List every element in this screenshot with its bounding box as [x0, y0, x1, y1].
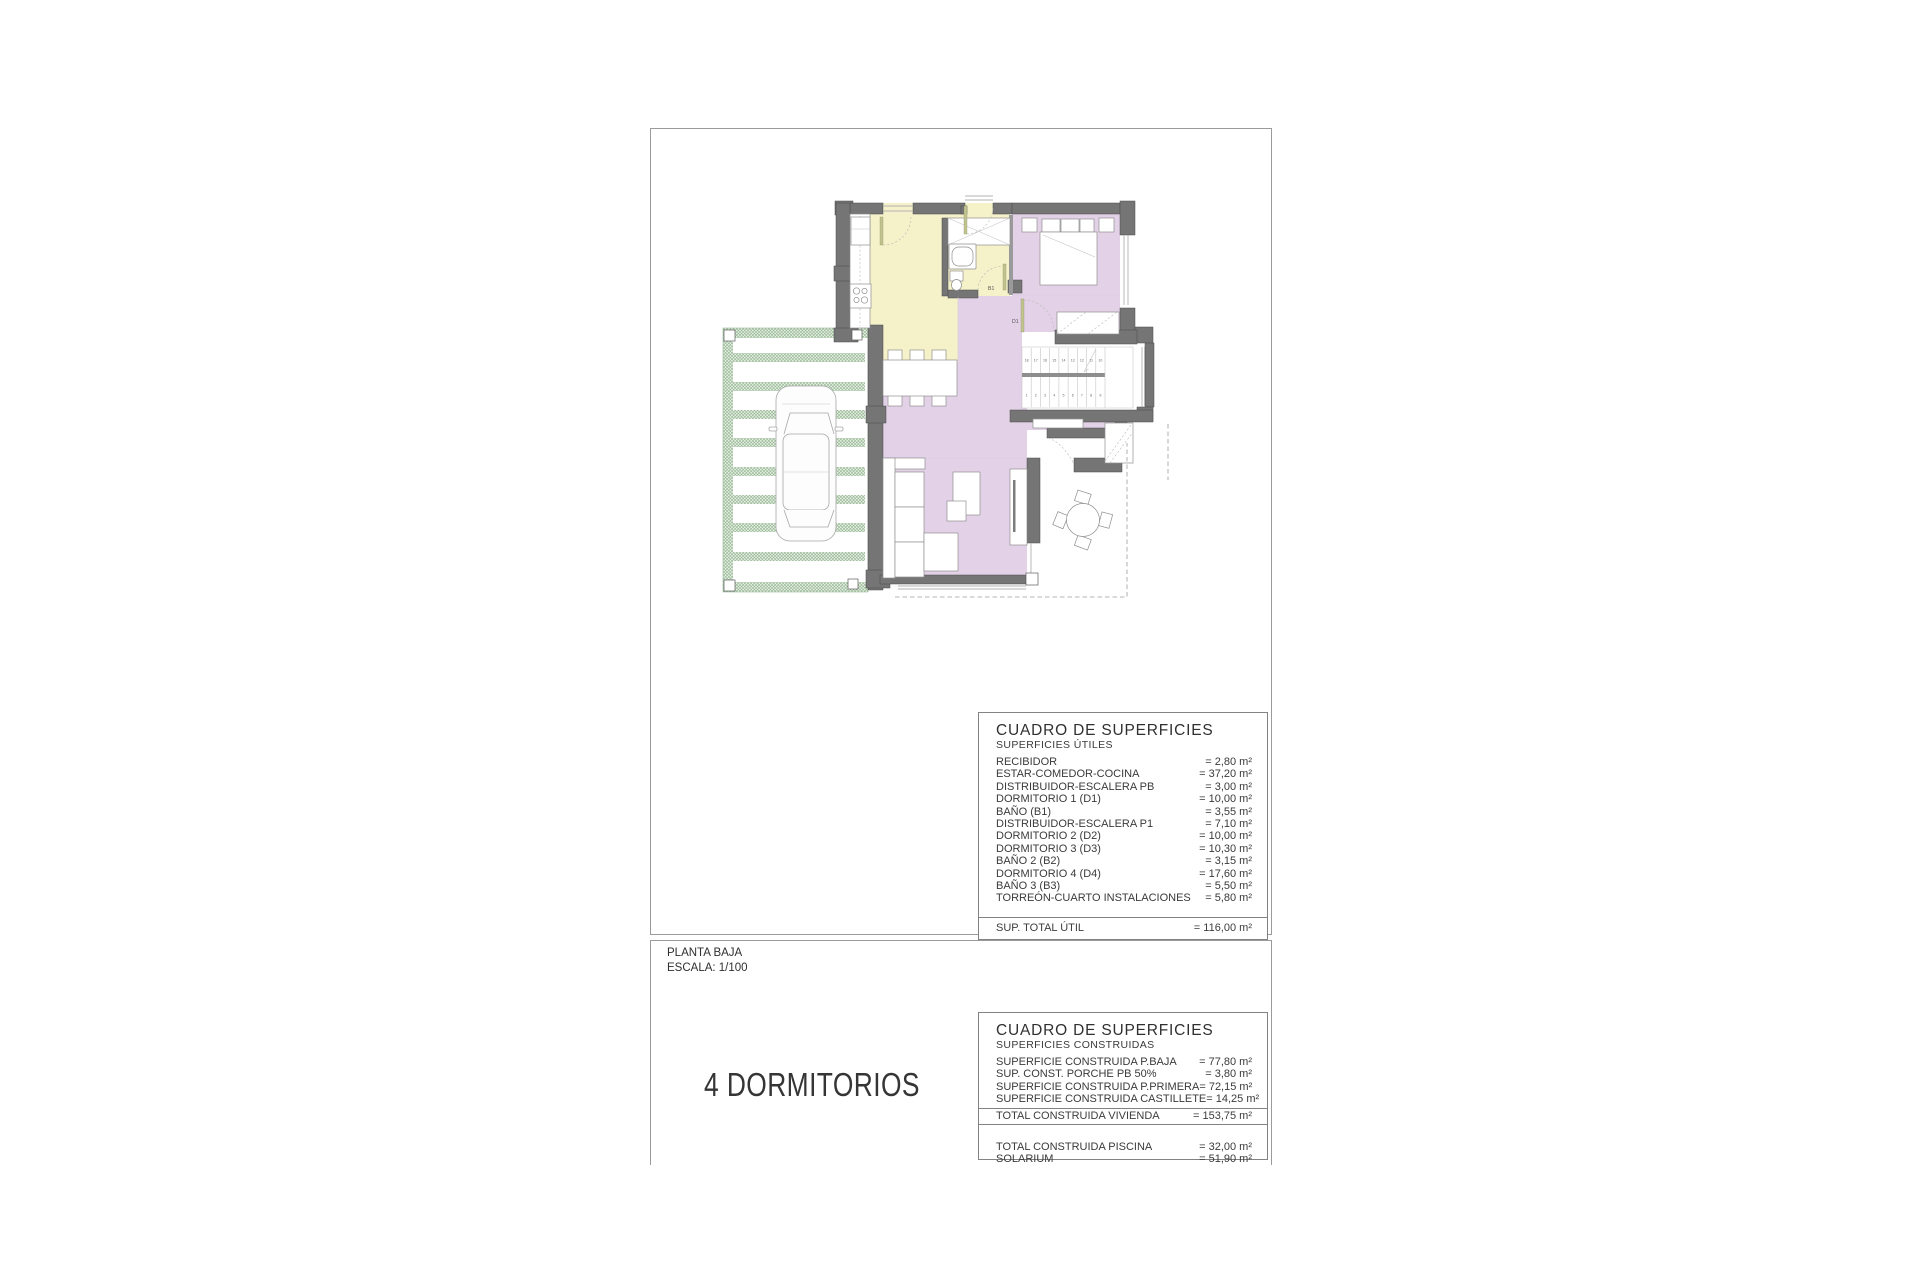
- nightstand: [1099, 218, 1114, 232]
- table-total-row: SUP. TOTAL ÚTIL = 116,00 m²: [979, 917, 1267, 939]
- table-row: RECIBIDOR = 2,80 m²: [996, 756, 1252, 768]
- stair-number: 8: [1090, 394, 1092, 398]
- stair-number: 9: [1099, 394, 1101, 398]
- dining-area: [883, 350, 957, 406]
- stair-number: 15: [1052, 359, 1056, 363]
- fridge: [851, 217, 870, 245]
- stair-number: 12: [1080, 359, 1084, 363]
- stair-number: 4: [1053, 394, 1055, 398]
- terrace-table: [1067, 504, 1100, 537]
- stair-number: 10: [1098, 359, 1102, 363]
- bathroom-label: B1: [988, 286, 994, 292]
- stair-number: 1: [1026, 394, 1028, 398]
- pergola-post: [848, 579, 858, 589]
- plan-name: PLANTA BAJA: [667, 946, 748, 961]
- stair-handrail: [1022, 373, 1105, 377]
- porch-post: [1026, 573, 1038, 585]
- pillow: [1042, 219, 1060, 232]
- table-superficies-utiles: CUADRO DE SUPERFICIES SUPERFICIES ÚTILES…: [978, 712, 1268, 940]
- stair-number: 18: [1025, 359, 1029, 363]
- table-subtitle: SUPERFICIES ÚTILES: [996, 739, 1252, 751]
- nightstand: [1022, 218, 1037, 232]
- stair-number: 6: [1072, 394, 1074, 398]
- terrace-chair: [1074, 490, 1091, 505]
- chair: [910, 350, 924, 361]
- entrance-door-leaf: [964, 206, 967, 234]
- pillow: [1061, 219, 1079, 232]
- stair-number: 17: [1034, 359, 1038, 363]
- wardrobe: [1057, 312, 1119, 334]
- plan-scale: ESCALA: 1/100: [667, 961, 748, 976]
- stair-number: 11: [1089, 359, 1093, 363]
- table-row: SUP. CONST. PORCHE PB 50% = 3,80 m²: [996, 1068, 1252, 1080]
- table-row: SUPERFICIE CONSTRUIDA P.BAJA = 77,80 m²: [996, 1056, 1252, 1068]
- terrace-chair: [1074, 535, 1091, 550]
- sofa-seat: [895, 507, 924, 542]
- table-row: DORMITORIO 3 (D3) = 10,30 m²: [996, 843, 1252, 855]
- terrace-chair: [1053, 512, 1068, 529]
- stair-number: 14: [1062, 359, 1066, 363]
- table-superficies-construidas: CUADRO DE SUPERFICIES SUPERFICIES CONSTR…: [978, 1012, 1268, 1160]
- stair-number: 16: [1043, 359, 1047, 363]
- dormitorios-label: 4 DORMITORIOS: [704, 1066, 920, 1104]
- sofa-chaise: [924, 533, 958, 571]
- staircase: 181716151413121110 123456789: [1022, 347, 1133, 408]
- chair: [932, 395, 946, 406]
- closet: [1105, 423, 1133, 463]
- understair-storage: [1033, 419, 1133, 464]
- side-table: [947, 501, 966, 521]
- chair: [888, 350, 902, 361]
- table-row: TOTAL CONSTRUIDA PISCINA = 32,00 m²: [996, 1141, 1252, 1153]
- table-row: DORMITORIO 2 (D2) = 10,00 m²: [996, 830, 1252, 842]
- shelf: [1033, 419, 1083, 428]
- bedroom-door-leaf: [1021, 299, 1024, 332]
- table-row: TORREÓN-CUARTO INSTALACIONES = 5,80 m²: [996, 892, 1252, 904]
- stair-number: 3: [1044, 394, 1046, 398]
- table-subtitle: SUPERFICIES CONSTRUIDAS: [996, 1039, 1252, 1051]
- stair-number: 5: [1063, 394, 1065, 398]
- sofa-seat: [895, 472, 924, 507]
- pillow: [1080, 219, 1094, 232]
- table-row: BAÑO 3 (B3) = 5,50 m²: [996, 880, 1252, 892]
- sofa-back: [883, 458, 895, 578]
- table-title: CUADRO DE SUPERFICIES: [996, 1023, 1252, 1039]
- sofa-seat: [895, 542, 924, 577]
- bed: [1040, 232, 1097, 285]
- table-row: BAÑO 2 (B2) = 3,15 m²: [996, 855, 1252, 867]
- table-row: DISTRIBUIDOR-ESCALERA P1 = 7,10 m²: [996, 818, 1252, 830]
- table-row: SUPERFICIE CONSTRUIDA P.PRIMERA = 72,15 …: [996, 1081, 1252, 1093]
- floor-plan-svg: 181716151413121110 123456789 B1: [700, 180, 1180, 620]
- table-row: DISTRIBUIDOR-ESCALERA PB = 3,00 m²: [996, 781, 1252, 793]
- stair-numbers-upper: 181716151413121110: [1025, 359, 1103, 363]
- table-rows: SUPERFICIE CONSTRUIDA P.BAJA = 77,80 m² …: [996, 1056, 1252, 1106]
- terrace-chair: [1098, 512, 1112, 528]
- stair-number: 7: [1081, 394, 1083, 398]
- hob: [850, 284, 871, 308]
- chair: [910, 395, 924, 406]
- tv-unit: [1010, 469, 1027, 545]
- table-row: DORMITORIO 4 (D4) = 17,60 m²: [996, 868, 1252, 880]
- bedroom-label: D1: [1012, 319, 1019, 325]
- tv: [1013, 480, 1016, 532]
- drawing-page: { "title_block": { "plan_name": "PLANTA …: [0, 0, 1920, 1280]
- wall-post: [852, 330, 862, 340]
- table-title: CUADRO DE SUPERFICIES: [996, 723, 1252, 739]
- kitchen: [850, 214, 871, 328]
- table-row: DORMITORIO 1 (D1) = 10,00 m²: [996, 793, 1252, 805]
- kitchen-door-leaf: [880, 217, 883, 245]
- stair-number: 2: [1035, 394, 1037, 398]
- chair: [932, 350, 946, 361]
- chair: [888, 395, 902, 406]
- table-row: ESTAR-COMEDOR-COCINA = 37,20 m²: [996, 768, 1252, 780]
- car-top-view: [769, 386, 843, 541]
- table-total-row: TOTAL CONSTRUIDA VIVIENDA = 153,75 m²: [979, 1108, 1267, 1125]
- table-rows: RECIBIDOR = 2,80 m² ESTAR-COMEDOR-COCINA…: [996, 756, 1252, 905]
- stair-number: 13: [1071, 359, 1075, 363]
- table-row: BAÑO (B1) = 3,55 m²: [996, 806, 1252, 818]
- bath-door-leaf: [1003, 264, 1006, 290]
- table-extra-rows: TOTAL CONSTRUIDA PISCINA = 32,00 m² SOLA…: [996, 1141, 1252, 1166]
- table-row: SOLARIUM = 51,90 m²: [996, 1153, 1252, 1165]
- plan-title: PLANTA BAJA ESCALA: 1/100: [667, 946, 748, 975]
- pergola-post: [724, 580, 735, 591]
- pergola-post: [724, 330, 735, 341]
- dining-table: [883, 360, 957, 396]
- table-row: SUPERFICIE CONSTRUIDA CASTILLETE = 14,25…: [996, 1093, 1252, 1105]
